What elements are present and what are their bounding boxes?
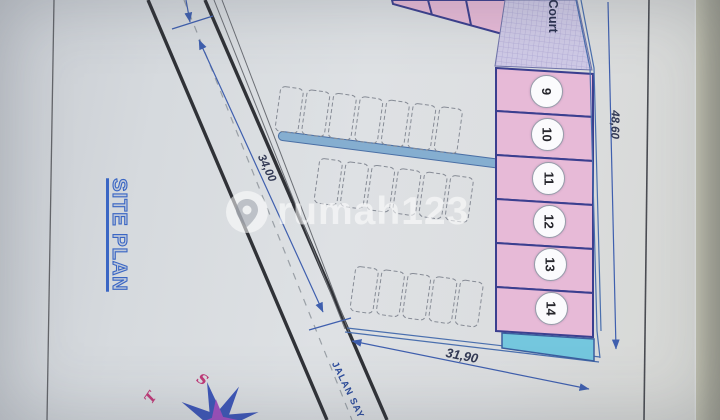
lot-number-11-text: 11 [541, 172, 556, 186]
road-lines [148, 0, 387, 420]
lot-number-10: 10 [531, 118, 564, 151]
page-title: SITE PLAN [106, 178, 132, 292]
compass-rose [177, 382, 258, 420]
lot-number-11: 11 [532, 162, 565, 195]
photo-background-strip [696, 0, 720, 420]
top-lot-strip [392, 0, 517, 38]
dimension-right-boundary: 48,60 [606, 102, 622, 146]
court-label: Court [544, 0, 562, 36]
lot-number-10-text: 10 [540, 127, 555, 141]
site-plan-photo: SITE PLAN Court 34,00 48,60 31,90 JALAN … [0, 0, 720, 420]
carport-row-3 [350, 266, 484, 327]
lot-number-13: 13 [534, 248, 567, 281]
carport-row-2 [314, 158, 474, 223]
lot-number-14: 14 [535, 292, 568, 325]
lot-number-9-text: 9 [539, 88, 554, 95]
lot-number-12: 12 [533, 205, 566, 238]
lot-number-12-text: 12 [542, 214, 557, 228]
lot-number-9: 9 [530, 75, 563, 108]
lot-number-13-text: 13 [543, 257, 558, 271]
lot-number-14-text: 14 [544, 301, 559, 315]
